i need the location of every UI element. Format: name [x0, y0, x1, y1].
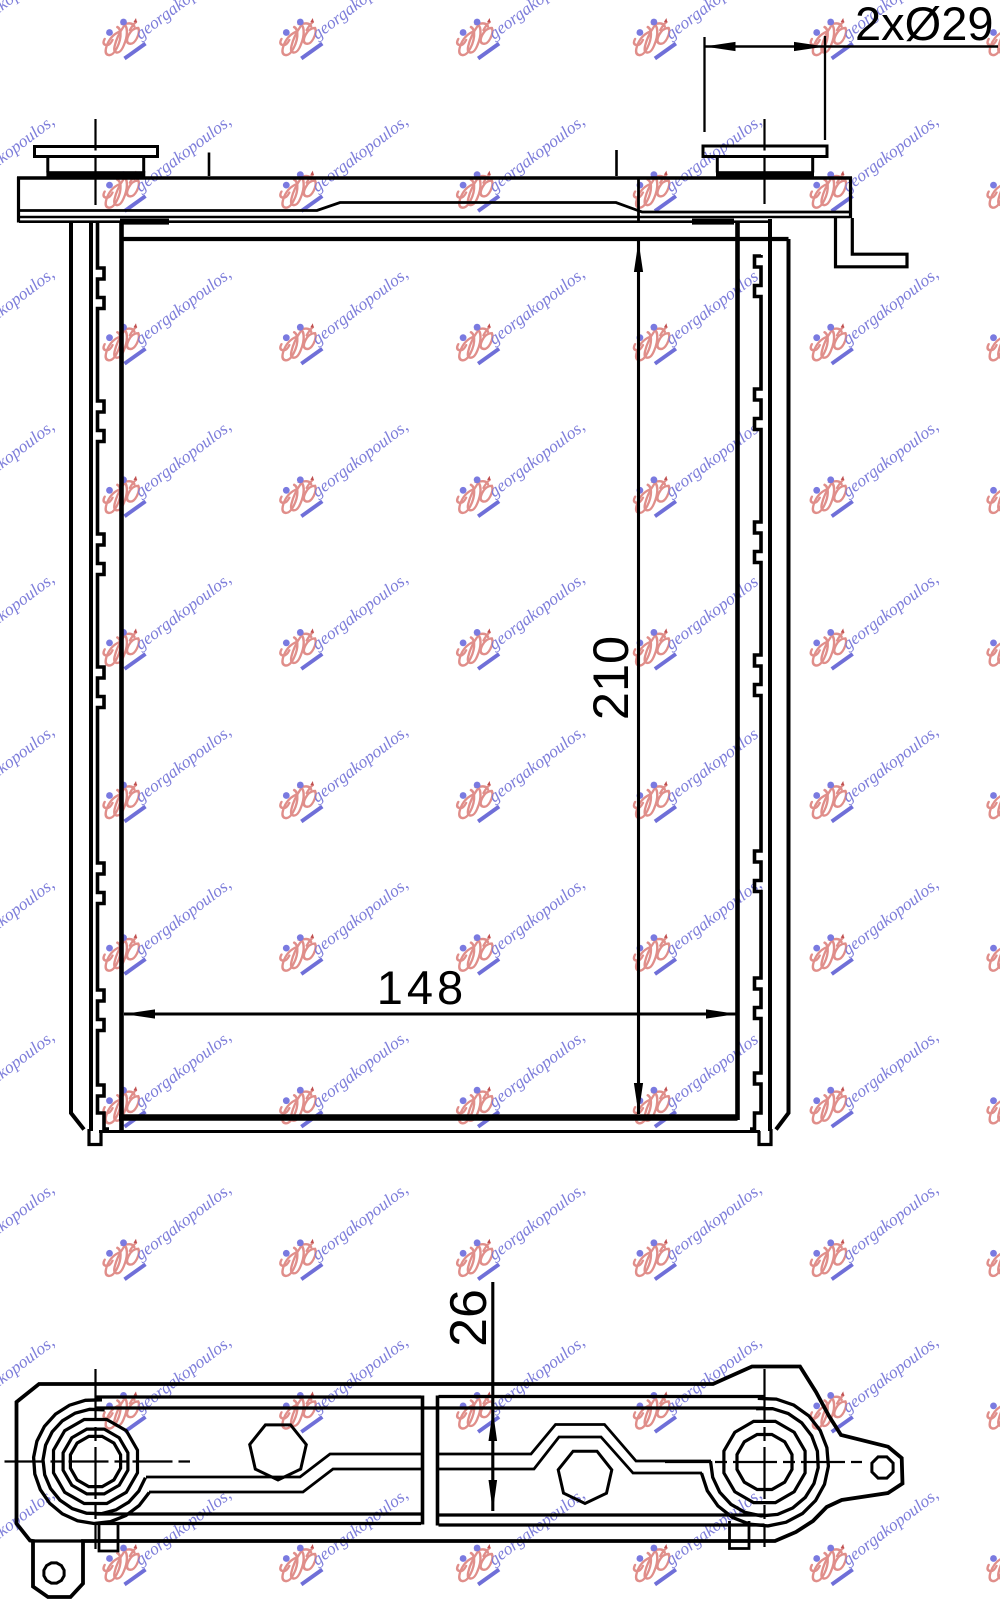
svg-text:26: 26	[440, 1289, 498, 1347]
svg-text:148: 148	[377, 961, 467, 1014]
svg-text:210: 210	[582, 636, 639, 720]
svg-text:2xØ29: 2xØ29	[855, 0, 993, 50]
